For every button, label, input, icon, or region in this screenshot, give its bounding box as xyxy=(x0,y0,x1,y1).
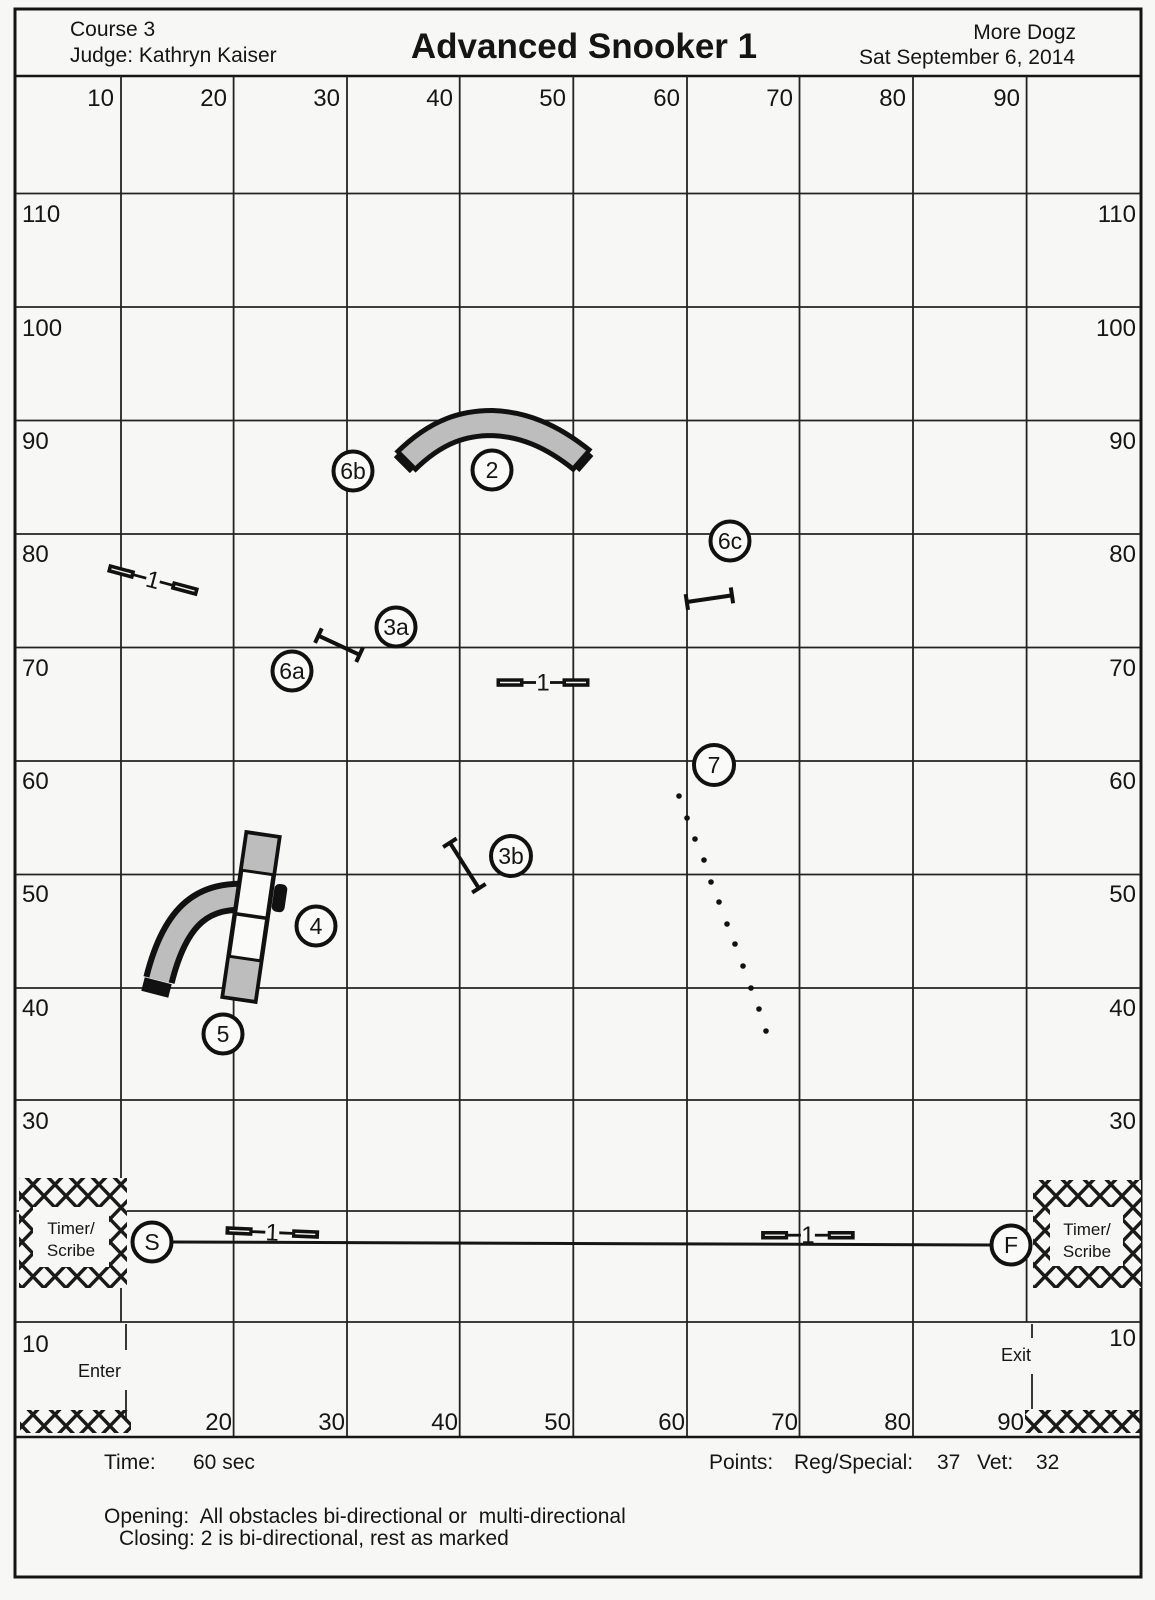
svg-text:Vet:: Vet: xyxy=(977,1451,1013,1474)
svg-text:10: 10 xyxy=(87,85,114,112)
svg-text:60: 60 xyxy=(1109,768,1136,795)
svg-text:2: 2 xyxy=(486,457,499,483)
svg-text:3b: 3b xyxy=(498,843,524,869)
svg-text:20: 20 xyxy=(205,1409,232,1436)
svg-text:5: 5 xyxy=(217,1021,230,1047)
svg-text:30: 30 xyxy=(1109,1108,1136,1135)
svg-text:Sat September 6, 2014: Sat September 6, 2014 xyxy=(859,46,1075,69)
svg-text:7: 7 xyxy=(708,752,721,778)
svg-text:1: 1 xyxy=(265,1219,280,1247)
svg-text:40: 40 xyxy=(431,1409,458,1436)
svg-text:70: 70 xyxy=(771,1409,798,1436)
svg-text:90: 90 xyxy=(997,1409,1024,1436)
svg-text:Time:: Time: xyxy=(104,1451,156,1474)
svg-text:40: 40 xyxy=(22,995,49,1022)
svg-text:10: 10 xyxy=(1109,1325,1136,1352)
svg-text:100: 100 xyxy=(22,315,62,342)
svg-text:Judge: Kathryn Kaiser: Judge: Kathryn Kaiser xyxy=(70,44,277,67)
svg-text:90: 90 xyxy=(1109,428,1136,455)
svg-text:6a: 6a xyxy=(279,658,305,684)
svg-text:Closing: 2 is bi-directional,: Closing: 2 is bi-directional, rest as ma… xyxy=(119,1527,509,1550)
svg-text:Scribe: Scribe xyxy=(47,1241,95,1260)
svg-text:90: 90 xyxy=(993,85,1020,112)
svg-text:20: 20 xyxy=(200,85,227,112)
svg-text:100: 100 xyxy=(1096,315,1136,342)
svg-text:Opening: All obstacles bi-dir: Opening: All obstacles bi-directional or… xyxy=(104,1505,626,1528)
svg-text:4: 4 xyxy=(310,913,323,939)
svg-text:F: F xyxy=(1004,1232,1018,1258)
svg-text:90: 90 xyxy=(22,428,49,455)
svg-text:60: 60 xyxy=(653,85,680,112)
svg-text:More Dogz: More Dogz xyxy=(973,21,1076,44)
svg-text:110: 110 xyxy=(1098,201,1136,228)
svg-text:60: 60 xyxy=(658,1409,685,1436)
svg-text:Points:: Points: xyxy=(709,1451,773,1474)
svg-text:Enter: Enter xyxy=(78,1361,121,1381)
svg-text:40: 40 xyxy=(1109,995,1136,1022)
svg-text:30: 30 xyxy=(313,85,340,112)
svg-text:Exit: Exit xyxy=(1001,1345,1031,1365)
svg-text:6c: 6c xyxy=(718,528,742,554)
svg-text:60: 60 xyxy=(22,768,49,795)
svg-text:1: 1 xyxy=(801,1222,814,1249)
svg-text:80: 80 xyxy=(879,85,906,112)
svg-text:70: 70 xyxy=(766,85,793,112)
svg-text:Advanced Snooker 1: Advanced Snooker 1 xyxy=(411,27,757,66)
svg-text:80: 80 xyxy=(1109,541,1136,568)
svg-text:3a: 3a xyxy=(383,614,409,640)
svg-text:37: 37 xyxy=(937,1451,960,1474)
svg-text:80: 80 xyxy=(22,541,49,568)
svg-text:S: S xyxy=(144,1229,159,1255)
svg-text:10: 10 xyxy=(22,1331,49,1358)
svg-text:70: 70 xyxy=(22,655,49,682)
svg-text:Course 3: Course 3 xyxy=(70,18,155,41)
svg-text:Timer/: Timer/ xyxy=(1063,1220,1111,1239)
svg-text:110: 110 xyxy=(22,201,60,228)
svg-text:Timer/: Timer/ xyxy=(47,1219,95,1238)
svg-text:Reg/Special:: Reg/Special: xyxy=(794,1451,913,1474)
svg-text:40: 40 xyxy=(426,85,453,112)
svg-text:1: 1 xyxy=(536,670,549,697)
svg-text:50: 50 xyxy=(544,1409,571,1436)
svg-text:70: 70 xyxy=(1109,655,1136,682)
svg-text:30: 30 xyxy=(22,1108,49,1135)
svg-text:60 sec: 60 sec xyxy=(193,1451,255,1474)
svg-text:30: 30 xyxy=(318,1409,345,1436)
svg-text:6b: 6b xyxy=(340,458,366,484)
svg-text:50: 50 xyxy=(22,881,49,908)
svg-text:32: 32 xyxy=(1036,1451,1059,1474)
svg-text:Scribe: Scribe xyxy=(1063,1242,1111,1261)
svg-text:50: 50 xyxy=(539,85,566,112)
svg-text:80: 80 xyxy=(884,1409,911,1436)
svg-text:50: 50 xyxy=(1109,881,1136,908)
